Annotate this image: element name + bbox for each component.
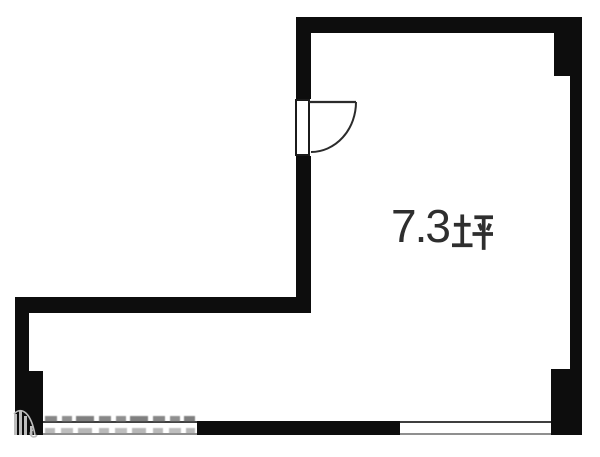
area-value-text: 7.3 [391, 203, 449, 249]
tsubo-kanji-icon [452, 205, 493, 250]
watermark-text-line-2 [45, 428, 195, 434]
door-swing-overlay [0, 0, 600, 457]
door-swing-arc-icon [311, 102, 356, 152]
watermark-logo-icon [11, 404, 41, 438]
watermark-text-line-1 [45, 416, 195, 422]
area-label: 7.3 [391, 203, 493, 250]
floorplan-canvas: 7.3 [0, 0, 600, 457]
